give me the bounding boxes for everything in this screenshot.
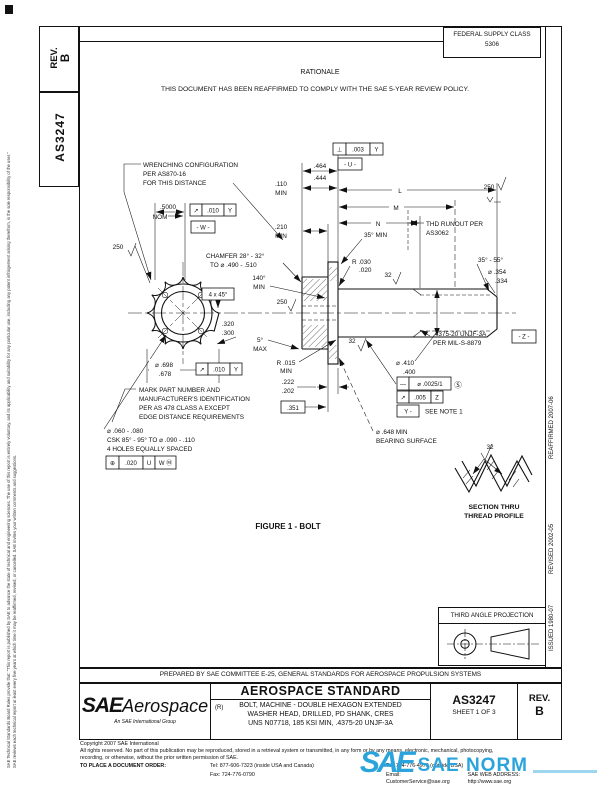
angle-35-min: 35° MIN [364,231,388,239]
sae-logo-cell: SAEAerospace An SAE International Group [80,684,211,739]
title-block: SAEAerospace An SAE International Group … [79,683,562,740]
fax-number: Fax: 724-776-0790 [210,772,382,786]
sheet-number: SHEET 1 OF 3 [431,709,517,716]
holes-note-3: 4 HOLES EQUALLY SPACED [107,446,193,453]
fcf-straightness-tol: ⌀ .0025/1 [417,382,443,388]
dim-222: .222 [282,379,295,386]
marking-note-3: PER AS 478 CLASS A EXCEPT [139,405,230,412]
watermark-rule [533,770,597,773]
dim-110-min: MIN [275,190,287,197]
engineering-standard-sheet: { "doc": { "corner_rev_label": "REV.", "… [0,0,600,776]
marking-note-1: MARK PART NUMBER AND [139,387,220,394]
fcf-straightness-modifier: Ⓢ [454,381,462,390]
title-line-1: BOLT, MACHINE - DOUBLE HEXAGON EXTENDED [211,702,430,711]
wrenching-note-2: PER AS870-16 [143,171,186,178]
fcf-runout-y-symbol: ↗ [199,368,204,374]
dim-L: L [398,188,402,195]
radius-015-min: MIN [280,368,292,375]
sae-norm-watermark: SAE SAE NORM [360,750,597,776]
holes-note-2: CSK 85° - 95° TO ⌀ .090 - .110 [107,436,195,444]
wrenching-note-1: WRENCHING CONFIGURATION [143,162,238,169]
fcf-straightness-symbol: — [400,382,406,388]
finish-32-shank: 32 [348,338,356,345]
dim-400: .400 [403,369,416,376]
doc-number-cell: AS3247 SHEET 1 OF 3 [431,684,518,739]
chamfer-note-1: CHAMFER 28° - 32° [206,252,265,260]
title-line-2: WASHER HEAD, DRILLED, PD SHANK, CRES [211,711,430,720]
marking-note-2: MANUFACTURER'S IDENTIFICATION [139,396,250,403]
finish-32-top: 32 [384,272,392,279]
fcf-runout-y-tol: .010 [213,368,225,374]
angle-140-min: MIN [253,284,265,291]
bearing-surface-1: ⌀ .648 MIN [376,429,408,436]
thread-section-view [455,455,532,492]
thd-runout-1: THD RUNOUT PER [426,221,483,228]
dim-202: .202 [282,388,295,395]
fcf-position-datum-2: W Ⓜ [159,459,172,467]
thread-callout-1: .4375-20 UNJF-3A [433,331,487,338]
watermark-logo: SAE [360,750,413,776]
fcf-runout-w-symbol: ↗ [193,209,198,215]
projection-symbol [439,624,544,665]
dim-698: ⌀ .698 [155,362,174,369]
fcf-runout-w-tol: .010 [207,209,219,215]
standard-title: (R) BOLT, MACHINE - DOUBLE HEXAGON EXTEN… [211,700,430,729]
fcf-runout-z-datum: Z [435,396,439,402]
dim-410: ⌀ .410 [396,360,415,367]
dim-110: .110 [275,181,287,188]
dim-5000: .5000 [160,204,176,211]
dim-444: .444 [314,175,327,182]
projection-title: THIRD ANGLE PROJECTION [439,608,545,624]
dim-M: M [393,205,398,212]
dim-210-min: MIN [275,233,287,240]
radius-020: .020 [359,267,372,274]
prepared-by-bar: PREPARED BY SAE COMMITTEE E-25, GENERAL … [79,668,562,683]
standard-type: AEROSPACE STANDARD [211,684,430,700]
fcf-perp-tol: .003 [352,148,364,154]
doc-number: AS3247 [431,693,517,707]
dim-5000-nom: NOM [153,214,168,221]
chamfer-note-2: TO ⌀ .490 - .510 [210,262,257,269]
angle-140: 140° [252,274,266,282]
copyright-line: Copyright 2007 SAE International [80,741,525,748]
section-caption-2: THREAD PROFILE [464,513,524,520]
angle-35-55: 35° - 55° [478,256,503,264]
fcf-perp-symbol: ⊥ [337,147,342,154]
holes-note-1: ⌀ .060 - .080 [107,428,144,435]
finish-250-right: 250 [484,184,495,191]
dim-464: .464 [314,163,327,170]
fcf-runout-y-datum: Y [234,368,238,374]
dim-354: ⌀ .354 [488,269,507,276]
fcf-position-symbol: ⊕ [110,461,115,467]
sae-logo-tagline: An SAE International Group [80,719,210,725]
thread-callout-2: PER MIL-S-8879 [433,340,482,347]
dim-351-basic: .351 [287,406,299,412]
finish-250-left: 250 [113,244,124,251]
revision-label: REV. [518,693,561,704]
revision-mark: (R) [215,705,223,711]
dim-678: .678 [159,371,172,378]
watermark-name: SAE NORM [418,756,528,775]
sae-logo: SAEAerospace [80,694,210,718]
fcf-perp-datum: Y [374,148,378,154]
datum-u: - U - [344,163,356,169]
bearing-surface-2: BEARING SURFACE [376,438,437,445]
tel-inside: Tel: 877-606-7323 (inside USA and Canada… [210,763,382,770]
figure-caption: FIGURE 1 - BOLT [255,522,320,531]
wrenching-note-3: FOR THIS DISTANCE [143,180,206,187]
dim-N: N [376,221,381,228]
fcf-runout-z-tol: .005 [414,396,426,402]
title-line-3: UNS N07718, 185 KSI MIN, .4375-20 UNJF-3… [211,720,430,729]
dim-300: .300 [222,330,235,337]
revision-value: B [518,704,561,718]
csk-4x45: 4 x 45° [209,293,228,299]
fcf-runout-z-symbol: ↗ [400,396,405,402]
fcf-position-tol: .020 [125,461,137,467]
finish-32-section: 32 [486,444,494,451]
dim-210: .210 [275,224,288,231]
radius-015: R .015 [277,360,296,367]
radius-030: R .030 [352,259,371,266]
marking-note-4: EDGE DISTANCE REQUIREMENTS [139,414,244,421]
dim-334: .334 [495,278,508,285]
third-angle-projection-box: THIRD ANGLE PROJECTION [438,607,546,666]
thd-runout-2: AS3062 [426,230,449,237]
fcf-runout-w-datum: Y [228,209,232,215]
dim-320: .320 [222,321,235,328]
fcf-position-datum-1: U [147,461,151,467]
datum-y: Y - [404,410,412,416]
angle-5-max: MAX [253,346,268,353]
angle-5: 5° [257,336,264,344]
datum-z: - Z - [519,335,530,341]
see-note-1: SEE NOTE 1 [425,409,463,416]
datum-w: - W - [197,226,210,232]
order-label: TO PLACE A DOCUMENT ORDER: [80,763,206,770]
standard-title-cell: AEROSPACE STANDARD (R) BOLT, MACHINE - D… [211,684,431,739]
revision-cell: REV. B [518,684,561,739]
section-caption-1: SECTION THRU [469,504,520,511]
finish-250-head: 250 [277,299,288,306]
